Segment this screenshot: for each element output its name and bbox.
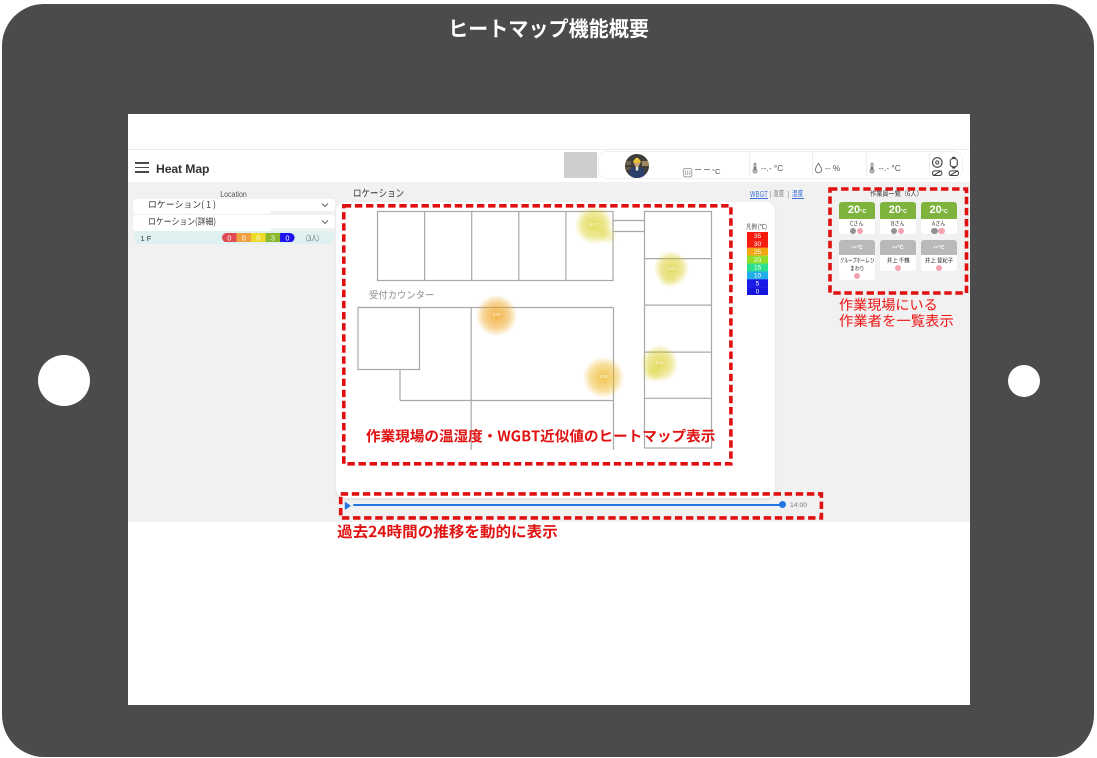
svg-text:35: 35 bbox=[753, 233, 761, 240]
svg-text:0: 0 bbox=[256, 233, 260, 242]
svg-text:20: 20 bbox=[753, 256, 761, 263]
svg-text:5: 5 bbox=[755, 280, 759, 287]
svg-text:0: 0 bbox=[227, 233, 231, 242]
svg-text:30: 30 bbox=[753, 241, 761, 248]
svg-text:0: 0 bbox=[755, 288, 759, 295]
svg-text:10: 10 bbox=[753, 272, 761, 279]
svg-text:0: 0 bbox=[242, 233, 246, 242]
svg-text:0: 0 bbox=[286, 233, 290, 242]
svg-text:15: 15 bbox=[753, 264, 761, 271]
svg-text:3: 3 bbox=[271, 233, 275, 242]
svg-text:25: 25 bbox=[753, 248, 761, 255]
